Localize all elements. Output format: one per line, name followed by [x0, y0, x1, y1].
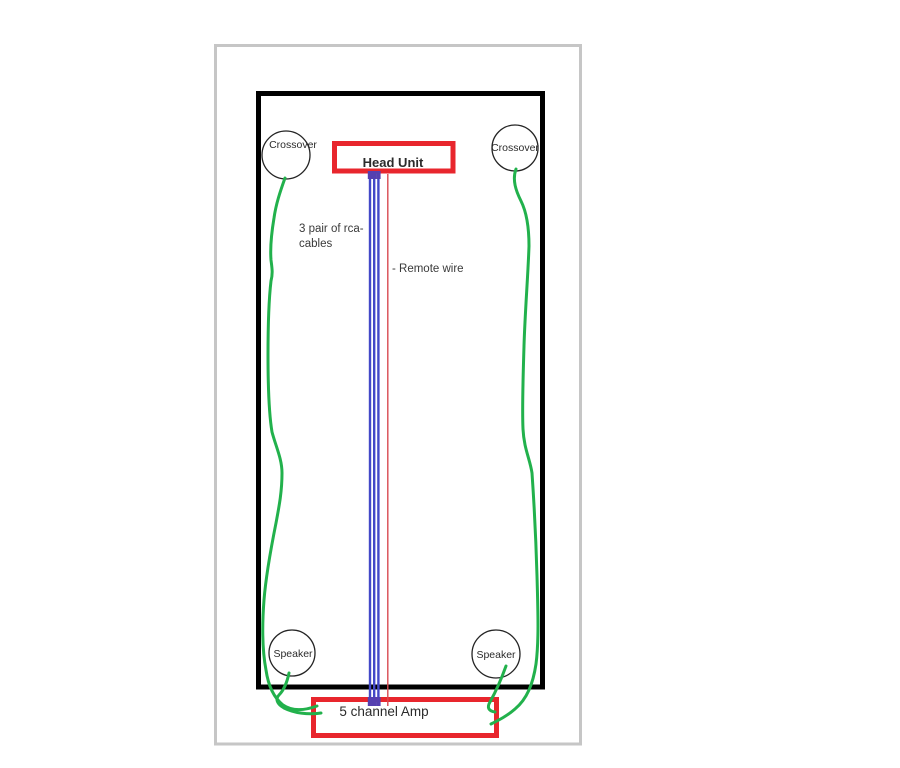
crossover-left-label: Crossover — [269, 139, 317, 151]
rca-annotation-line1: 3 pair of rca- — [299, 223, 364, 235]
wiring-diagram: Crossover Crossover Speaker Speaker Head… — [0, 0, 900, 768]
car-body-outline — [259, 94, 543, 688]
remote-wire-annotation: - Remote wire — [392, 263, 464, 275]
amp-label: 5 channel Amp — [339, 704, 428, 719]
crossover-right-label: Crossover — [491, 142, 539, 154]
rca-annotation-line2: cables — [299, 238, 332, 250]
speaker-right-label: Speaker — [476, 649, 516, 661]
head-unit-label: Head Unit — [363, 155, 424, 170]
paint-canvas: Crossover Crossover Speaker Speaker Head… — [0, 0, 900, 768]
speaker-left-label: Speaker — [273, 648, 313, 660]
